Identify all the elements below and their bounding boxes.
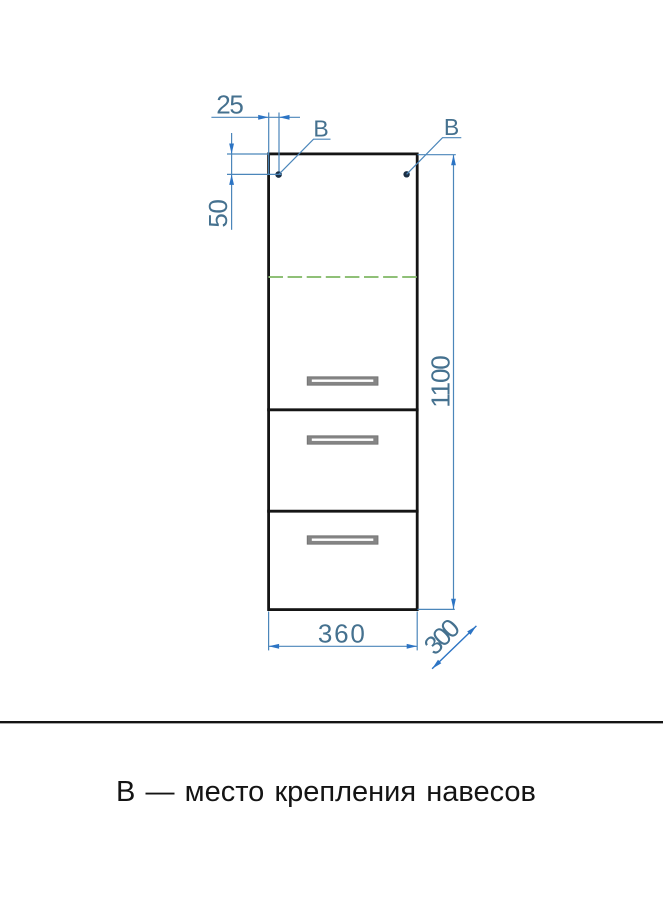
- svg-text:В — место крепления навесов: В — место крепления навесов: [116, 776, 536, 808]
- svg-text:300: 300: [418, 612, 466, 660]
- svg-text:25: 25: [216, 90, 244, 120]
- svg-text:360: 360: [318, 619, 365, 649]
- svg-text:B: B: [313, 116, 328, 142]
- svg-text:50: 50: [203, 199, 233, 228]
- svg-text:1100: 1100: [426, 355, 456, 408]
- svg-text:B: B: [444, 114, 459, 140]
